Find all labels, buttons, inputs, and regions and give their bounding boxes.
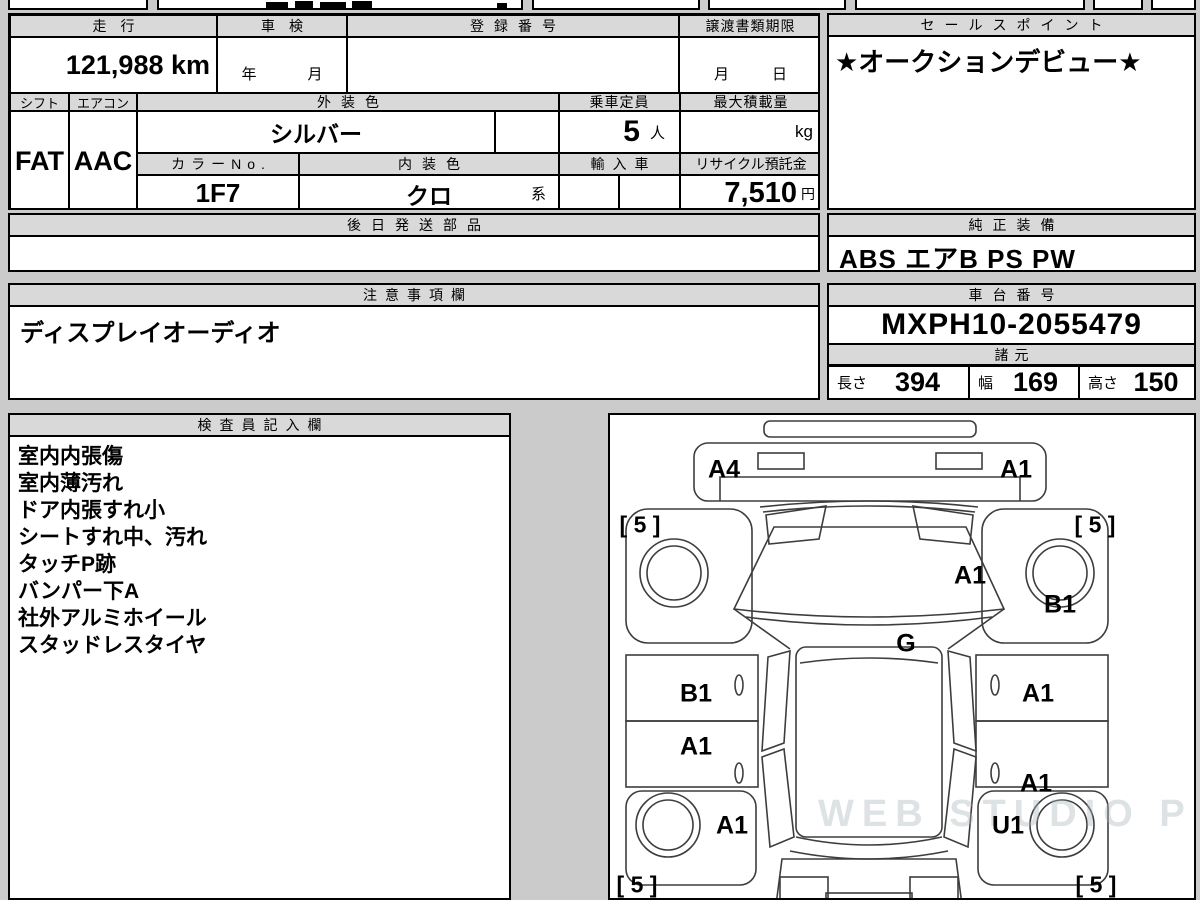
imported-value-left: [559, 175, 619, 210]
damage-code-label: A1: [1000, 456, 1032, 485]
rear-bumper-corner-left: [780, 877, 828, 898]
registration-header: 登録番号: [347, 15, 679, 37]
front-bumper-step: [720, 477, 1020, 501]
imported-header: 輸入車: [559, 153, 680, 175]
damage-code-label: B1: [1044, 591, 1076, 620]
color-no-value: 1F7: [137, 175, 299, 210]
cutoff-cell: [8, 0, 148, 10]
exterior-color-header: 外装色: [137, 93, 559, 111]
tire-grade-label: [ 5 ]: [1075, 512, 1116, 539]
transfer-deadline-header: 譲渡書類期限: [679, 15, 820, 37]
recycle-deposit-header: リサイクル預託金: [680, 153, 820, 175]
fog-lamp-left: [758, 453, 804, 469]
exterior-color-value: シルバー: [137, 111, 495, 153]
tire-grade-label: [ 5 ]: [1076, 872, 1117, 899]
rear-bumper-center: [826, 893, 912, 898]
cutoff-text-fragment: [295, 1, 313, 9]
damage-code-label: A1: [1022, 680, 1054, 709]
inspector-note-item: バンパー下A: [18, 578, 501, 605]
aircon-value: AAC: [69, 111, 137, 210]
sales-point-value: ★オークションデビュー★: [829, 37, 1194, 208]
inspector-note-item: タッチP跡: [18, 551, 501, 578]
dimension-length: 長さ394: [829, 366, 969, 398]
roof-front-arc: [800, 658, 938, 663]
headlight-left: [766, 506, 826, 544]
max-load-value: kg: [680, 111, 820, 153]
inspector-note-item: スタッドレスタイヤ: [18, 632, 501, 659]
fog-lamp-right: [936, 453, 982, 469]
damage-code-label: A1: [716, 812, 748, 841]
dimension-width: 幅169: [969, 366, 1079, 398]
damage-code-label: B1: [680, 680, 712, 709]
mileage-value: 121,988 km: [10, 37, 217, 93]
door-handle-right-front: [991, 675, 999, 695]
sill-strip-left-lower: [762, 749, 794, 847]
inspector-notes-header: 検査員記入欄: [10, 415, 509, 437]
sales-point-box: セールスポイント ★オークションデビュー★: [827, 13, 1196, 210]
door-handle-right-rear: [991, 763, 999, 783]
auction-sheet: { "sheet": { "mileage": {"label": "走行", …: [0, 0, 1200, 900]
damage-code-label: A1: [1020, 770, 1052, 799]
trunk: [776, 859, 962, 898]
dimension-height: 高さ150: [1079, 366, 1194, 398]
genuine-equipment-header: 純正装備: [829, 215, 1194, 237]
damage-code-label: A4: [708, 456, 740, 485]
mileage-header: 走行: [10, 15, 217, 37]
chassis-header: 車台番号: [829, 285, 1194, 307]
inspector-notes-box: 検査員記入欄 室内内張傷室内薄汚れドア内張すれ小シートすれ中、汚れタッチP跡バン…: [8, 413, 511, 900]
rear-deck-arc: [790, 851, 948, 859]
front-bumper: [694, 443, 1046, 501]
spec-table: 走行 車検 登録番号 譲渡書類期限 121,988 km 年 月 月 日 シフト…: [8, 13, 820, 210]
tire-grade-label: [ 5 ]: [620, 512, 661, 539]
chassis-box: 車台番号 MXPH10-2055479 諸元 長さ394 幅169 高さ150: [827, 283, 1196, 400]
door-handle-left-rear: [735, 763, 743, 783]
damage-code-label: U1: [992, 812, 1024, 841]
sill-strip-right-upper: [948, 651, 976, 751]
cutoff-text-fragment: [266, 2, 288, 9]
inspector-note-item: ドア内張すれ小: [18, 497, 501, 524]
chassis-value: MXPH10-2055479: [829, 307, 1194, 344]
sales-point-header: セールスポイント: [829, 15, 1194, 37]
tire-grade-label: [ 5 ]: [617, 872, 658, 899]
cutoff-text-fragment: [320, 2, 346, 9]
damage-code-label: A1: [954, 562, 986, 591]
shift-header: シフト: [10, 93, 69, 111]
cutoff-cell: [1151, 0, 1196, 10]
cautions-header: 注意事項欄: [10, 285, 818, 307]
imported-value-right: [619, 175, 680, 210]
a-pillar-right: [948, 609, 1004, 649]
capacity-value: 5人: [559, 111, 680, 153]
cutoff-text-fragment: [497, 3, 507, 9]
later-parts-header: 後日発送部品: [10, 215, 818, 237]
inspector-note-item: 室内内張傷: [18, 443, 501, 470]
cutoff-cell: [1093, 0, 1143, 10]
sill-strip-left-upper: [762, 651, 790, 751]
a-pillar-left: [734, 609, 790, 649]
genuine-equipment-box: 純正装備 ABS エアB PS PW: [827, 213, 1196, 272]
aircon-header: エアコン: [69, 93, 137, 111]
cutoff-text-fragment: [352, 1, 372, 9]
rear-bumper-corner-right: [910, 877, 958, 898]
door-handle-left-front: [735, 675, 743, 695]
rear-window-arc: [796, 837, 942, 845]
capacity-header: 乗車定員: [559, 93, 680, 111]
inspector-note-item: シートすれ中、汚れ: [18, 524, 501, 551]
recycle-deposit-value: 7,510円: [680, 175, 820, 210]
cowl-arc: [746, 617, 992, 625]
interior-color-header: 内装色: [299, 153, 559, 175]
front-wheel-left: [640, 539, 708, 607]
cautions-value: ディスプレイオーディオ: [10, 307, 818, 398]
cautions-box: 注意事項欄 ディスプレイオーディオ: [8, 283, 820, 400]
later-parts-box: 後日発送部品: [8, 213, 820, 272]
transfer-deadline-value: 月 日: [679, 37, 820, 93]
cutoff-cell: [855, 0, 1085, 10]
cutoff-cell: [708, 0, 846, 10]
interior-color-value: クロ系: [299, 175, 559, 210]
later-parts-value: [10, 237, 818, 270]
registration-value: [347, 37, 679, 93]
front-grille-bar: [764, 421, 976, 437]
genuine-equipment-value: ABS エアB PS PW: [829, 237, 1194, 270]
headlight-right: [913, 506, 973, 544]
color-no-header: カラーNo.: [137, 153, 299, 175]
damage-diagram: WEB STUDIO PRO A4A1[ 5 ][ 5 ]A1B1GB1A1A1…: [608, 413, 1196, 900]
inspector-note-item: 室内薄汚れ: [18, 470, 501, 497]
dimensions-header: 諸元: [829, 344, 1194, 366]
inspector-notes-list: 室内内張傷室内薄汚れドア内張すれ小シートすれ中、汚れタッチP跡バンパー下A社外ア…: [10, 439, 509, 898]
shift-value: FAT: [10, 111, 69, 210]
shaken-value: 年 月: [217, 37, 347, 93]
rear-wheel-left: [636, 793, 700, 857]
max-load-header: 最大積載量: [680, 93, 820, 111]
shaken-header: 車検: [217, 15, 347, 37]
inspector-note-item: 社外アルミホイール: [18, 605, 501, 632]
exterior-color-extra: [495, 111, 559, 153]
damage-code-label: G: [896, 630, 915, 659]
cutoff-cell: [532, 0, 700, 10]
damage-code-label: A1: [680, 733, 712, 762]
